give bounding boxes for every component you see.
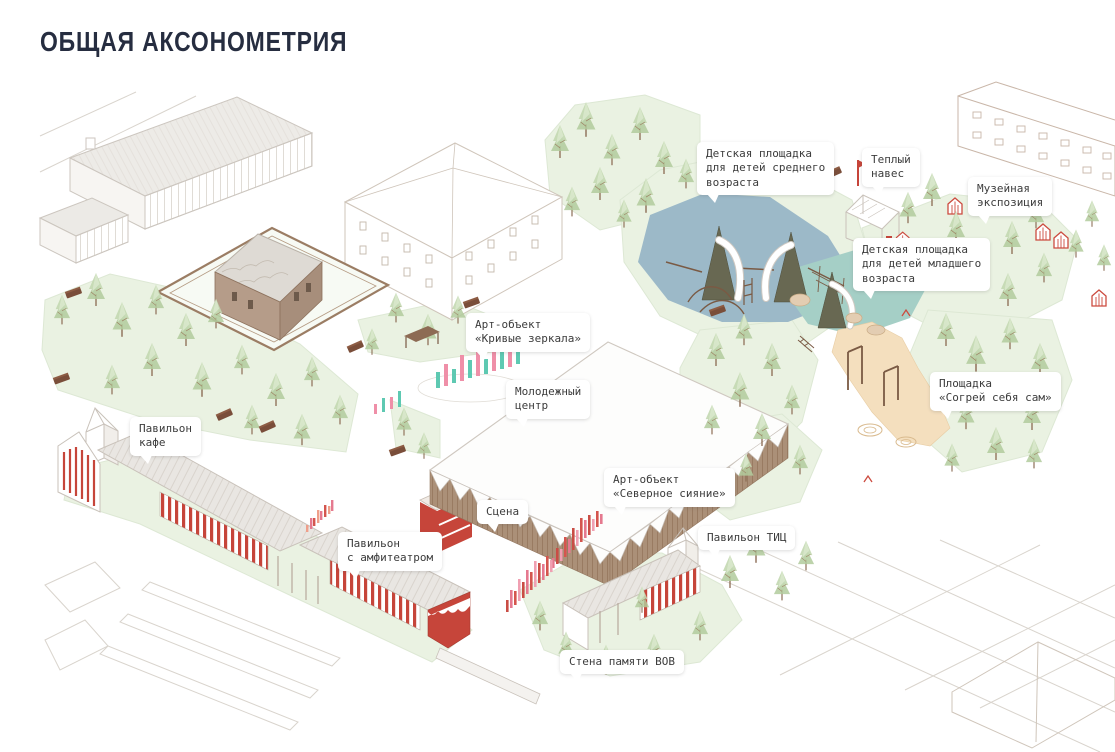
label-cafe-pavilion: Павильон кафе	[130, 417, 201, 456]
axonometry-sheet: ОБЩАЯ АКСОНОМЕТРИЯ	[0, 0, 1115, 752]
label-wwii-memory-wall: Стена памяти ВОВ	[560, 650, 684, 674]
label-playground-younger: Детская площадка для детей младшего возр…	[853, 238, 990, 291]
label-warm-canopy: Теплый навес	[862, 148, 920, 187]
context-school-building	[345, 143, 562, 320]
art-pickets-near-cafe	[306, 500, 333, 532]
label-tic-pavilion: Павильон ТИЦ	[698, 526, 795, 550]
label-playground-middle: Детская площадка для детей среднего возр…	[697, 142, 834, 195]
label-amphitheater-pavilion: Павильон с амфитеатром	[338, 532, 442, 571]
label-art-northern-lights: Арт-объект «Северное сияние»	[604, 468, 735, 507]
label-youth-center: Молодежный центр	[506, 380, 590, 419]
label-art-mirrors: Арт-объект «Кривые зеркала»	[466, 313, 590, 352]
label-warm-yourself: Площадка «Согрей себя сам»	[930, 372, 1061, 411]
wwii-memory-wall-structure	[436, 648, 540, 704]
label-museum-expo: Музейная экспозиция	[968, 177, 1052, 216]
label-stage: Сцена	[477, 500, 528, 524]
